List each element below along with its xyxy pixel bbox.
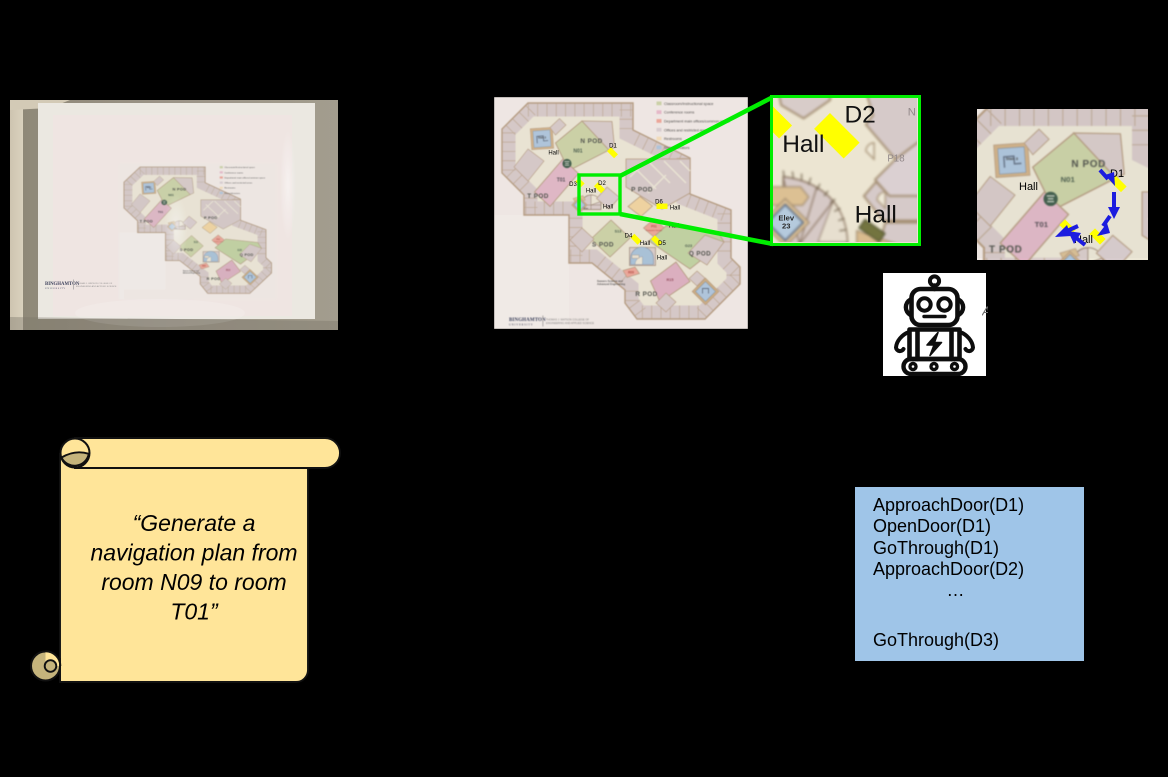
svg-text:Hall: Hall bbox=[1019, 181, 1038, 193]
svg-text:P18: P18 bbox=[887, 153, 904, 164]
svg-text:Hall: Hall bbox=[855, 202, 897, 229]
svg-text:A: A bbox=[982, 304, 988, 318]
svg-text:room N09 to room: room N09 to room bbox=[101, 569, 286, 595]
svg-text:N: N bbox=[908, 106, 916, 118]
svg-text:T01”: T01” bbox=[170, 599, 219, 625]
svg-text:navigation plan from: navigation plan from bbox=[90, 540, 297, 566]
svg-text:23: 23 bbox=[782, 222, 791, 231]
svg-text:“Generate a: “Generate a bbox=[133, 510, 256, 536]
svg-text:Hall: Hall bbox=[782, 131, 824, 158]
svg-text:D2: D2 bbox=[844, 102, 875, 129]
